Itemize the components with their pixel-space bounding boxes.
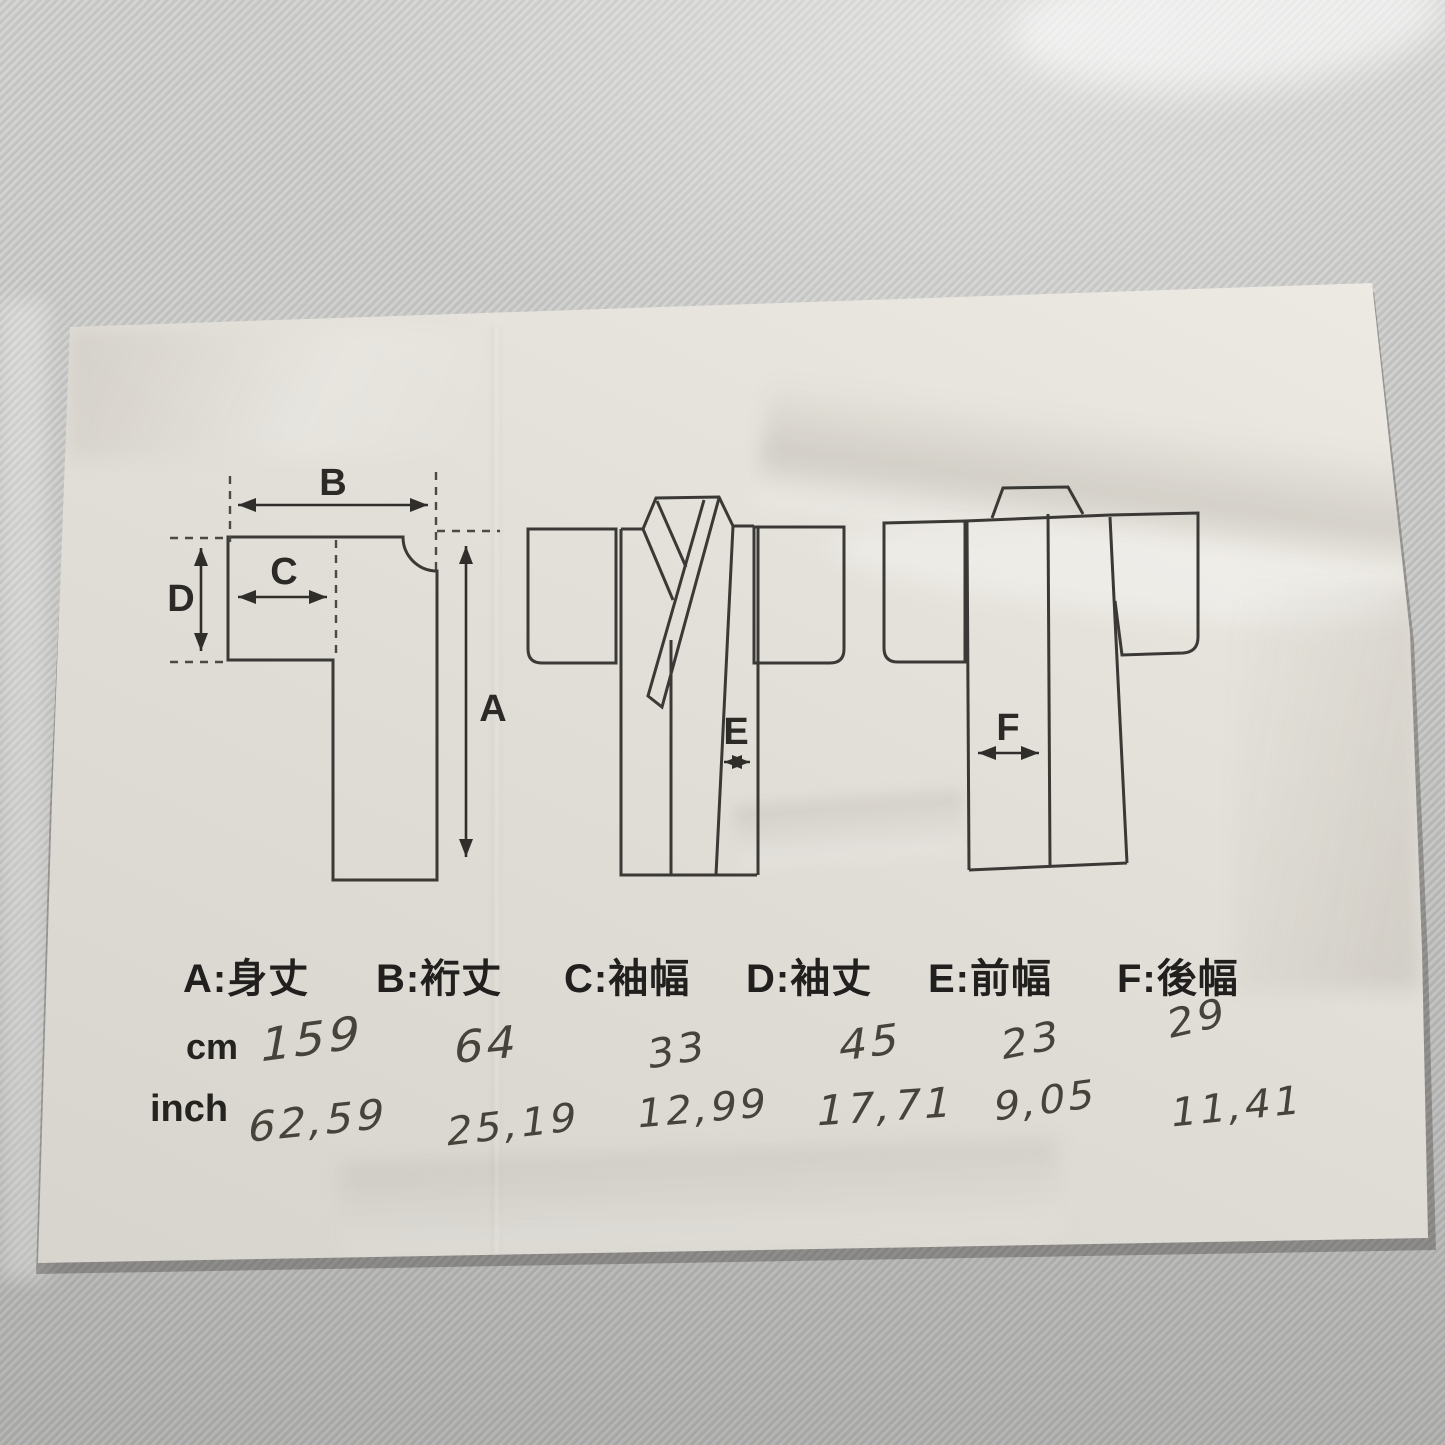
- diagram-folded-kimono: B C D A: [167, 462, 506, 880]
- unit-inch-label: inch: [150, 1088, 228, 1131]
- back-left-sleeve: [884, 521, 965, 662]
- handwritten-inch-D: 17,71: [812, 1077, 959, 1135]
- dimension-label-F: F: [996, 707, 1019, 749]
- legend-item-C: C:袖幅: [564, 946, 690, 1004]
- back-right-sleeve: [1110, 513, 1198, 655]
- front-body: [621, 526, 758, 875]
- photo-of-kimono-size-sheet: B C D A E F A:身丈: [0, 0, 1445, 1445]
- legend-item-A: A:身丈: [183, 946, 309, 1004]
- legend-item-D: D:袖丈: [746, 946, 872, 1004]
- dimension-label-B: B: [319, 462, 346, 504]
- measurement-legend: A:身丈 B:裄丈 C:袖幅 D:袖丈 E:前幅 F:後幅: [0, 946, 1445, 996]
- kimono-measurement-diagram: B C D A E F: [0, 0, 1445, 1445]
- folded-kimono-outline: [228, 537, 437, 880]
- front-left-sleeve: [528, 529, 616, 663]
- dimension-label-A: A: [479, 688, 506, 730]
- back-collar: [992, 487, 1083, 518]
- legend-item-E: E:前幅: [928, 946, 1052, 1004]
- unit-cm-label: cm: [186, 1026, 238, 1068]
- front-right-sleeve: [754, 527, 844, 663]
- front-collar-cross-band: [648, 498, 719, 707]
- back-shoulder-line: [965, 515, 1110, 521]
- dimension-label-D: D: [167, 578, 194, 620]
- handwritten-cm-B: 64: [450, 1015, 523, 1074]
- legend-item-B: B:裄丈: [376, 946, 502, 1004]
- back-body: [967, 514, 1127, 870]
- dimension-label-E: E: [723, 711, 748, 753]
- diagram-kimono-front: E: [528, 497, 844, 875]
- diagram-kimono-back: F: [884, 487, 1198, 870]
- dimension-label-C: C: [270, 551, 297, 593]
- handwritten-cm-D: 45: [835, 1014, 905, 1072]
